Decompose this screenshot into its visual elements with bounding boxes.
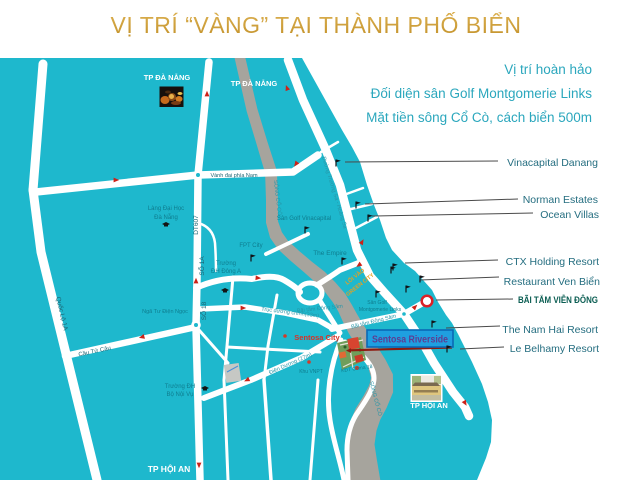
- svg-text:Làng Đại Học: Làng Đại Học: [148, 206, 184, 212]
- svg-text:Sân Golf: Sân Golf: [367, 300, 387, 306]
- svg-text:Restaurant Ven Biển: Restaurant Ven Biển: [504, 276, 600, 288]
- svg-text:TP ĐÀ NẴNG: TP ĐÀ NẴNG: [144, 73, 191, 82]
- svg-text:Ngã Tư Điện Ngọc: Ngã Tư Điện Ngọc: [142, 309, 188, 315]
- svg-text:Vinacapital Danang: Vinacapital Danang: [507, 157, 598, 169]
- svg-text:Vị trí hoàn hảo: Vị trí hoàn hảo: [504, 62, 592, 77]
- svg-text:CTX Holding Resort: CTX Holding Resort: [506, 256, 599, 268]
- svg-text:Ocean Villas: Ocean Villas: [540, 209, 599, 221]
- svg-text:Trường: Trường: [216, 261, 236, 267]
- svg-text:Trường ĐH: Trường ĐH: [165, 384, 195, 390]
- svg-text:The Nam Hai Resort: The Nam Hai Resort: [502, 324, 598, 336]
- svg-text:Le Belhamy Resort: Le Belhamy Resort: [510, 343, 599, 355]
- svg-text:Khu VNPT: Khu VNPT: [299, 369, 323, 375]
- svg-text:Sentosa City: Sentosa City: [294, 333, 340, 342]
- svg-text:VỊ TRÍ “VÀNG” TẠI THÀNH PHỐ BI: VỊ TRÍ “VÀNG” TẠI THÀNH PHỐ BIỂN: [111, 11, 522, 38]
- svg-text:FPT City: FPT City: [239, 243, 262, 249]
- svg-text:BÃI TẮM VIỄN ĐÔNG: BÃI TẮM VIỄN ĐÔNG: [518, 294, 598, 306]
- svg-text:Sentosa Riverside: Sentosa Riverside: [372, 334, 448, 346]
- svg-text:The Empire: The Empire: [313, 250, 347, 257]
- svg-text:Bộ Nội Vụ: Bộ Nội Vụ: [166, 392, 193, 398]
- svg-text:Đà Nẵng: Đà Nẵng: [154, 214, 178, 221]
- svg-text:TP HỘI AN: TP HỘI AN: [148, 463, 191, 474]
- svg-text:Vành đai phía Nam: Vành đai phía Nam: [210, 173, 258, 179]
- svg-text:Norman Estates: Norman Estates: [523, 194, 598, 206]
- svg-text:Sân Golf Vinacapital: Sân Golf Vinacapital: [277, 216, 331, 222]
- svg-text:Mặt tiền sông Cổ Cò, cách biển: Mặt tiền sông Cổ Cò, cách biển 500m: [366, 110, 592, 125]
- svg-text:Đối diện sân Golf Montgomerie: Đối diện sân Golf Montgomerie Links: [371, 86, 593, 101]
- svg-text:TP HỘI AN: TP HỘI AN: [410, 401, 448, 410]
- svg-text:DT607: DT607: [193, 215, 200, 235]
- svg-text:Montgomerie Links: Montgomerie Links: [359, 307, 402, 313]
- svg-text:TP ĐÀ NẴNG: TP ĐÀ NẴNG: [231, 79, 278, 88]
- svg-text:ĐH Đông A: ĐH Đông A: [211, 269, 241, 275]
